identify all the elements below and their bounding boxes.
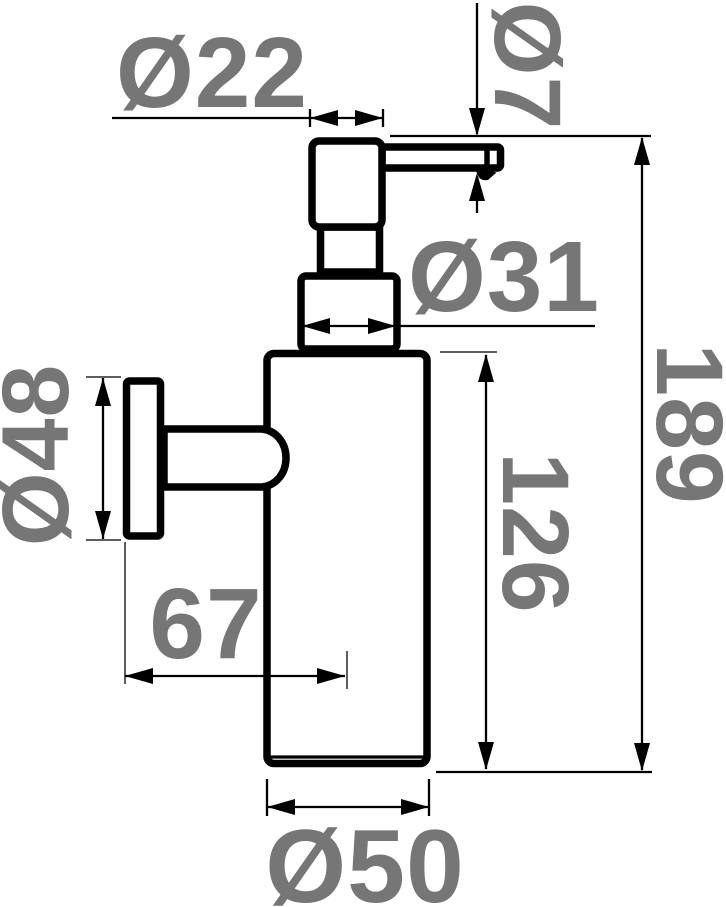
dim-label-wall-plate-diameter: Ø48	[0, 364, 89, 547]
dim-label-pump-head-width: Ø22	[116, 17, 308, 129]
arrowhead-left	[310, 110, 338, 126]
arrowhead-down	[634, 743, 650, 771]
arrowhead-down	[95, 511, 111, 539]
arrowhead-down	[478, 742, 494, 770]
arrowhead-right	[355, 110, 383, 126]
soap-dispenser-dimension-diagram: Ø22 Ø7 Ø31 Ø48	[0, 0, 726, 907]
bottle-body	[267, 354, 427, 764]
dim-label-body-diameter: Ø50	[265, 809, 465, 907]
pump-neck	[321, 227, 380, 272]
dim-label-overall-height: 189	[636, 343, 726, 505]
arrowhead-up	[478, 354, 494, 382]
technical-drawing-canvas: Ø22 Ø7 Ø31 Ø48	[0, 0, 726, 907]
arrowhead-up	[95, 378, 111, 406]
dim-label-spout-diameter: Ø7	[474, 2, 580, 131]
dimension-pump-head-width: Ø22	[112, 17, 383, 129]
bottle-collar	[301, 276, 397, 349]
dimension-body-diameter: Ø50	[265, 779, 465, 907]
dim-label-collar-diameter: Ø31	[408, 221, 600, 333]
dimension-spout-diameter: Ø7	[469, 2, 580, 213]
spout-tube	[382, 147, 501, 168]
mounting-arm	[164, 429, 286, 487]
arrowhead-up	[634, 137, 650, 165]
dimension-wall-plate-diameter: Ø48	[0, 364, 121, 547]
dim-label-wall-to-body-center: 67	[149, 568, 262, 680]
dimension-body-height: 126	[440, 352, 588, 770]
pump-head	[312, 141, 382, 227]
dim-label-body-height: 126	[482, 452, 588, 614]
wall-plate	[127, 381, 161, 536]
